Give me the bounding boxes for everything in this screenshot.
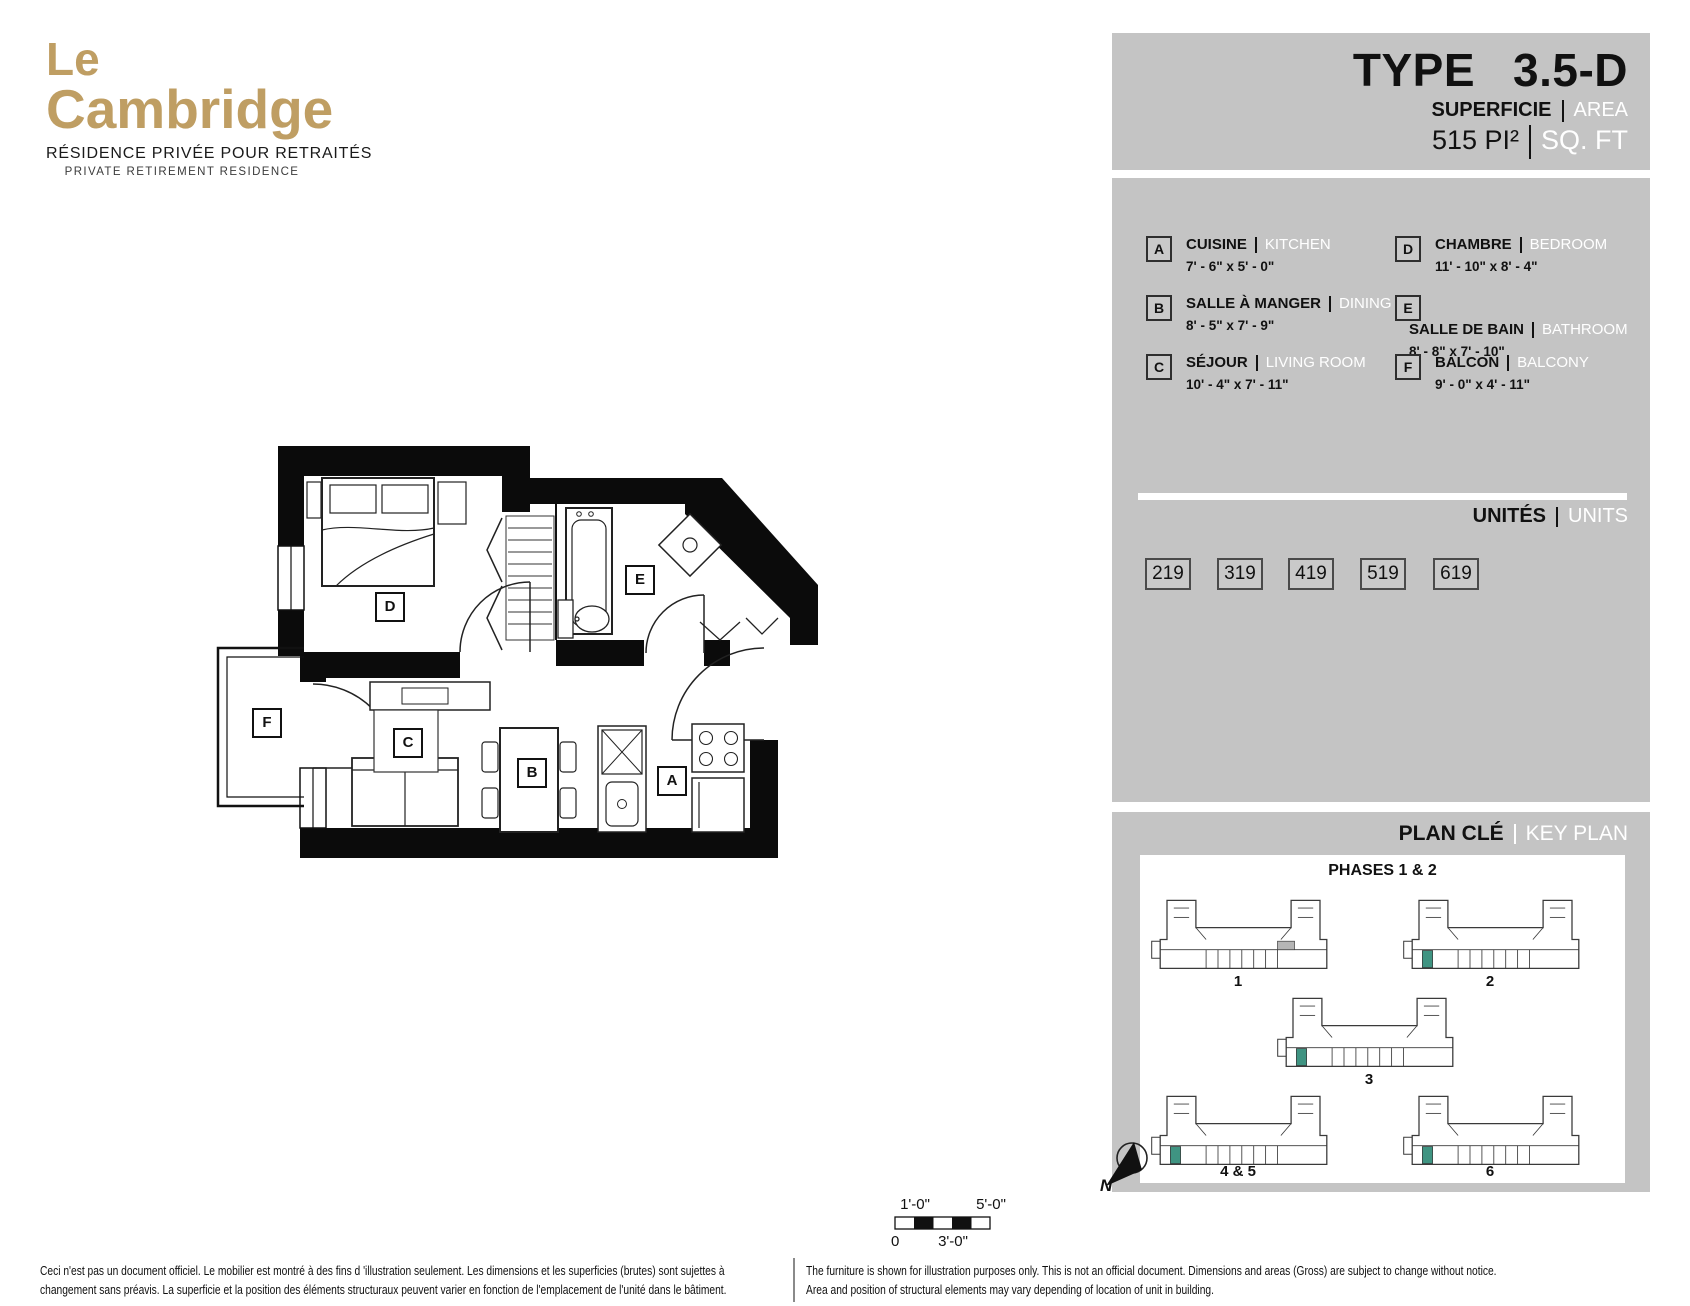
living-window xyxy=(300,768,326,828)
entry-closet-doors xyxy=(700,618,778,640)
bed xyxy=(322,478,434,586)
floor-plan-drawing xyxy=(0,0,1690,1306)
room-label-dining: B xyxy=(517,758,547,788)
closet-bifold-doors xyxy=(487,518,502,650)
room-label-bathroom: E xyxy=(625,565,655,595)
fridge xyxy=(692,778,744,832)
room-label-balcony: F xyxy=(252,708,282,738)
dresser xyxy=(370,682,490,710)
kitchen-counter xyxy=(598,726,646,832)
north-arrow-icon xyxy=(1090,1130,1170,1210)
room-label-kitchen: A xyxy=(657,766,687,796)
room-label-bedroom: D xyxy=(375,592,405,622)
north-letter: N xyxy=(1100,1176,1112,1196)
bedroom-window xyxy=(278,546,304,610)
room-label-living: C xyxy=(393,728,423,758)
floorplan-sheet: { "logo": { "line1": "Le", "line2": "Cam… xyxy=(0,0,1690,1306)
stove xyxy=(692,724,744,772)
scale-bar xyxy=(895,1217,990,1229)
